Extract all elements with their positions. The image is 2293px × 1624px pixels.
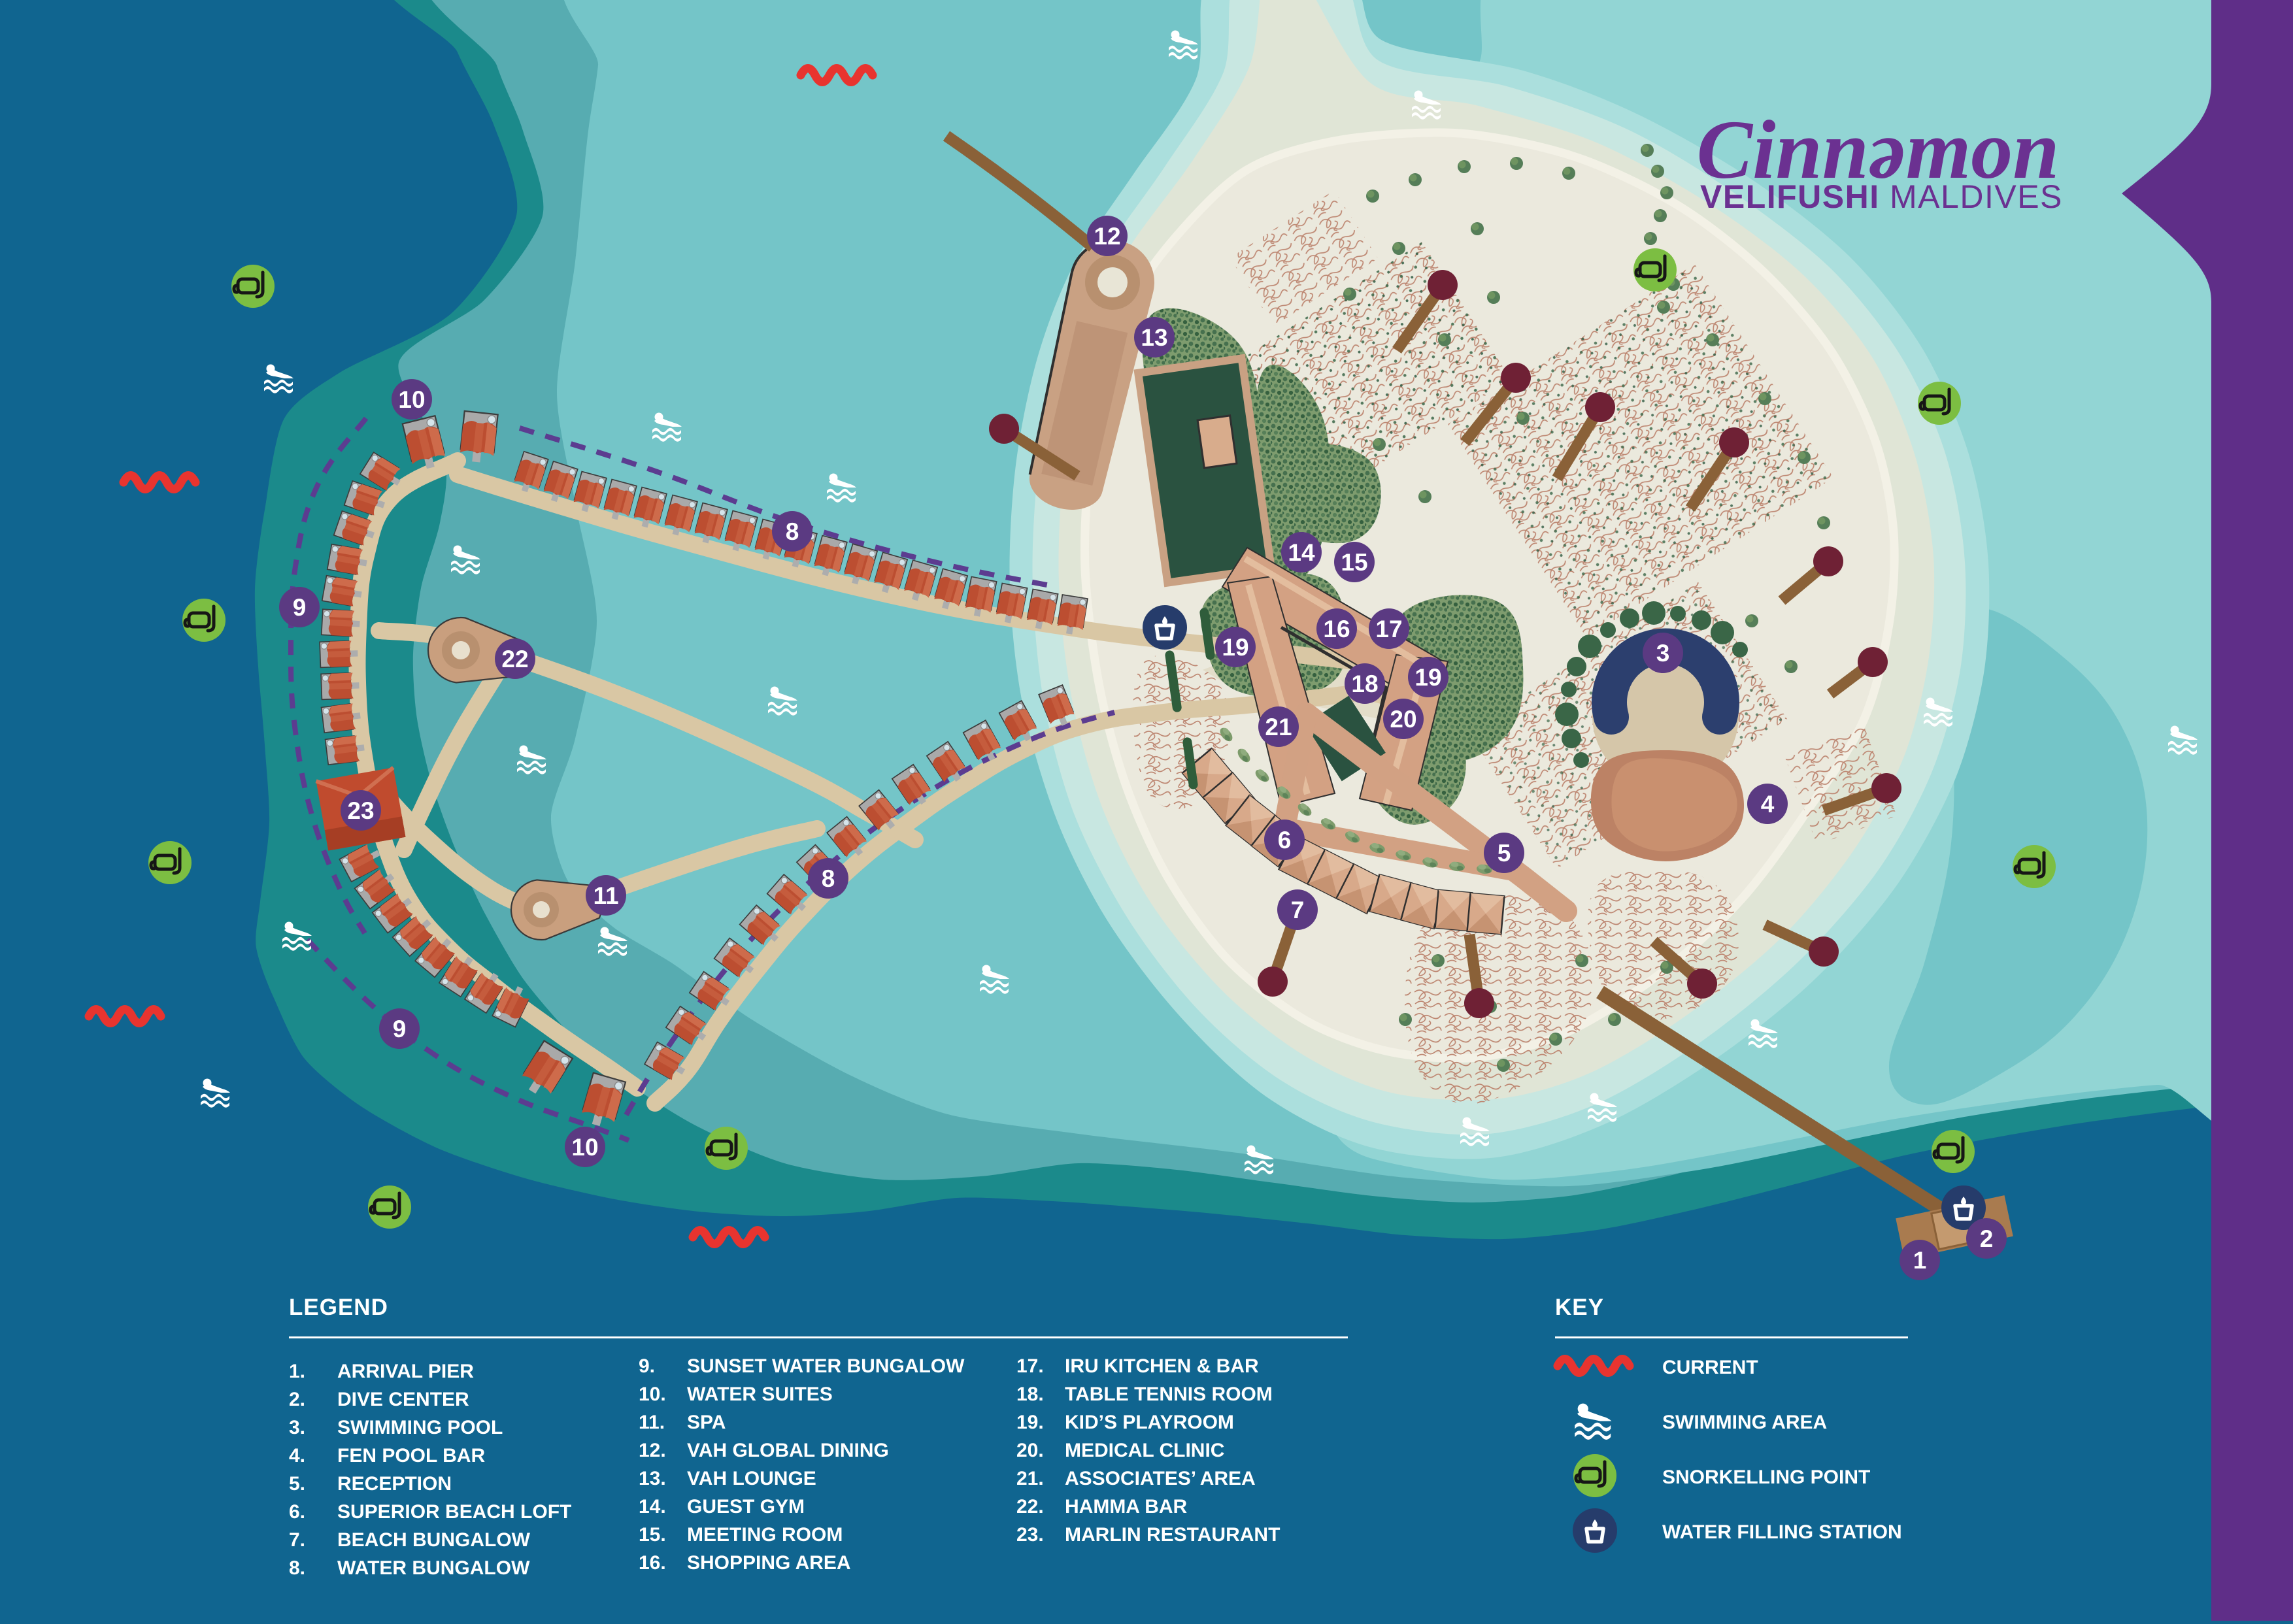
svg-text:15: 15 bbox=[1341, 549, 1367, 576]
svg-text:8: 8 bbox=[786, 518, 799, 545]
svg-text:VAH GLOBAL DINING: VAH GLOBAL DINING bbox=[687, 1440, 889, 1461]
svg-text:11.: 11. bbox=[639, 1412, 665, 1433]
svg-text:14.: 14. bbox=[639, 1496, 666, 1517]
svg-text:12: 12 bbox=[1094, 223, 1120, 250]
svg-text:9: 9 bbox=[393, 1016, 407, 1042]
svg-text:SWIMMING POOL: SWIMMING POOL bbox=[337, 1417, 503, 1438]
svg-text:MEETING ROOM: MEETING ROOM bbox=[687, 1524, 843, 1546]
svg-text:1: 1 bbox=[1913, 1247, 1927, 1274]
svg-text:MARLIN RESTAURANT: MARLIN RESTAURANT bbox=[1065, 1524, 1280, 1546]
svg-text:17: 17 bbox=[1375, 616, 1402, 642]
svg-text:5.: 5. bbox=[289, 1473, 305, 1495]
svg-text:15.: 15. bbox=[639, 1524, 666, 1546]
svg-text:SWIMMING AREA: SWIMMING AREA bbox=[1662, 1412, 1827, 1433]
svg-text:10.: 10. bbox=[639, 1384, 666, 1405]
svg-text:MEDICAL CLINIC: MEDICAL CLINIC bbox=[1065, 1440, 1224, 1461]
svg-text:20.: 20. bbox=[1016, 1440, 1044, 1461]
svg-text:7: 7 bbox=[1291, 897, 1305, 923]
svg-text:20: 20 bbox=[1390, 706, 1416, 733]
svg-text:SNORKELLING POINT: SNORKELLING POINT bbox=[1662, 1467, 1870, 1488]
svg-text:6.: 6. bbox=[289, 1501, 305, 1523]
svg-text:FEN POOL BAR: FEN POOL BAR bbox=[337, 1445, 485, 1467]
svg-text:22: 22 bbox=[501, 646, 528, 672]
svg-text:KID’S PLAYROOM: KID’S PLAYROOM bbox=[1065, 1412, 1234, 1433]
svg-text:6: 6 bbox=[1278, 827, 1292, 853]
svg-text:12.: 12. bbox=[639, 1440, 666, 1461]
svg-text:VELIFUSHI MALDIVES: VELIFUSHI MALDIVES bbox=[1700, 178, 2063, 215]
svg-text:HAMMA BAR: HAMMA BAR bbox=[1065, 1496, 1188, 1517]
svg-text:4.: 4. bbox=[289, 1445, 305, 1467]
svg-text:ARRIVAL PIER: ARRIVAL PIER bbox=[337, 1361, 474, 1382]
svg-text:18: 18 bbox=[1351, 671, 1378, 697]
svg-text:GUEST GYM: GUEST GYM bbox=[687, 1496, 805, 1517]
svg-text:IRU KITCHEN & BAR: IRU KITCHEN & BAR bbox=[1065, 1355, 1259, 1377]
svg-text:8: 8 bbox=[822, 865, 835, 892]
svg-text:TABLE TENNIS ROOM: TABLE TENNIS ROOM bbox=[1065, 1384, 1273, 1405]
svg-text:3: 3 bbox=[1656, 640, 1670, 667]
svg-text:19: 19 bbox=[1222, 634, 1248, 661]
svg-text:3.: 3. bbox=[289, 1417, 305, 1438]
svg-text:LEGEND: LEGEND bbox=[289, 1295, 388, 1320]
svg-text:SHOPPING AREA: SHOPPING AREA bbox=[687, 1552, 851, 1574]
svg-text:18.: 18. bbox=[1016, 1384, 1044, 1405]
svg-text:KEY: KEY bbox=[1555, 1295, 1604, 1320]
svg-text:9: 9 bbox=[293, 594, 307, 621]
svg-text:13: 13 bbox=[1141, 324, 1167, 351]
svg-text:2: 2 bbox=[1980, 1225, 1994, 1252]
svg-text:BEACH BUNGALOW: BEACH BUNGALOW bbox=[337, 1529, 531, 1551]
svg-text:7.: 7. bbox=[289, 1529, 305, 1551]
svg-text:8.: 8. bbox=[289, 1557, 305, 1579]
svg-text:SPA: SPA bbox=[687, 1412, 726, 1433]
svg-text:CURRENT: CURRENT bbox=[1662, 1357, 1758, 1378]
svg-text:14: 14 bbox=[1288, 539, 1315, 566]
svg-text:9.: 9. bbox=[639, 1355, 655, 1377]
svg-text:21.: 21. bbox=[1016, 1468, 1044, 1489]
svg-text:WATER BUNGALOW: WATER BUNGALOW bbox=[337, 1557, 530, 1579]
svg-text:13.: 13. bbox=[639, 1468, 666, 1489]
svg-text:VAH LOUNGE: VAH LOUNGE bbox=[687, 1468, 816, 1489]
svg-text:RECEPTION: RECEPTION bbox=[337, 1473, 452, 1495]
svg-text:11: 11 bbox=[593, 882, 618, 909]
svg-text:2.: 2. bbox=[289, 1389, 305, 1410]
svg-text:22.: 22. bbox=[1016, 1496, 1044, 1517]
svg-text:21: 21 bbox=[1265, 714, 1292, 740]
svg-text:17.: 17. bbox=[1016, 1355, 1044, 1377]
svg-text:ASSOCIATES’ AREA: ASSOCIATES’ AREA bbox=[1065, 1468, 1256, 1489]
svg-text:DIVE CENTER: DIVE CENTER bbox=[337, 1389, 469, 1410]
svg-text:5: 5 bbox=[1498, 840, 1511, 867]
svg-text:19: 19 bbox=[1414, 664, 1441, 691]
svg-text:16: 16 bbox=[1323, 616, 1350, 642]
svg-text:10: 10 bbox=[571, 1134, 598, 1161]
svg-text:23: 23 bbox=[347, 797, 374, 824]
svg-text:WATER FILLING STATION: WATER FILLING STATION bbox=[1662, 1521, 1902, 1543]
svg-text:WATER SUITES: WATER SUITES bbox=[687, 1384, 833, 1405]
svg-text:19.: 19. bbox=[1016, 1412, 1044, 1433]
svg-text:SUPERIOR BEACH LOFT: SUPERIOR BEACH LOFT bbox=[337, 1501, 571, 1523]
svg-text:23.: 23. bbox=[1016, 1524, 1044, 1546]
svg-text:16.: 16. bbox=[639, 1552, 666, 1574]
svg-text:4: 4 bbox=[1761, 791, 1775, 818]
svg-text:1.: 1. bbox=[289, 1361, 305, 1382]
svg-text:SUNSET WATER BUNGALOW: SUNSET WATER BUNGALOW bbox=[687, 1355, 965, 1377]
svg-text:10: 10 bbox=[398, 386, 425, 413]
